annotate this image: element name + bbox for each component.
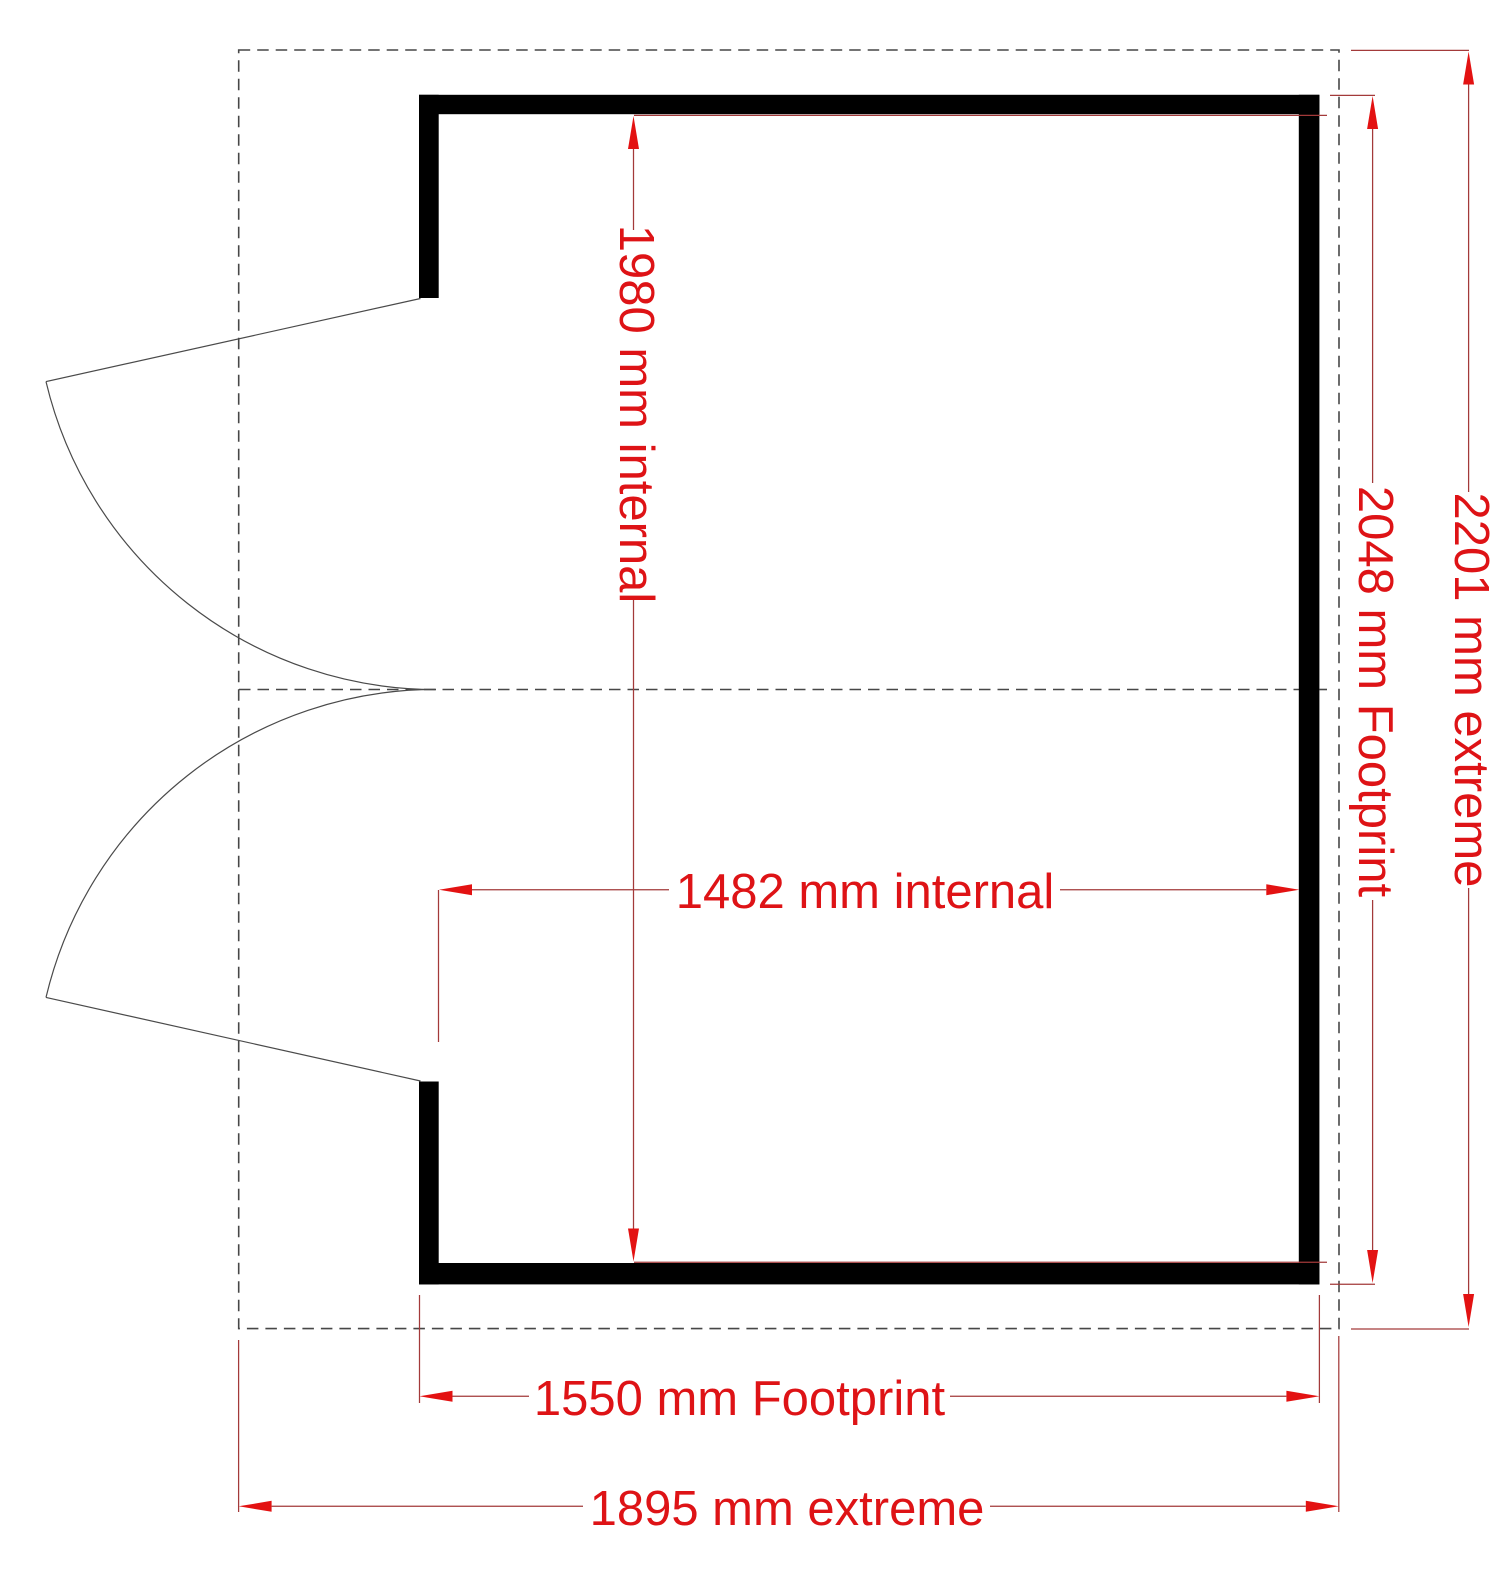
svg-text:1980 mm internal: 1980 mm internal xyxy=(609,225,663,604)
svg-text:1895 mm extreme: 1895 mm extreme xyxy=(590,1482,985,1536)
svg-text:1550 mm Footprint: 1550 mm Footprint xyxy=(534,1372,946,1426)
svg-text:1482 mm internal: 1482 mm internal xyxy=(676,865,1055,919)
svg-text:2048 mm Footprint: 2048 mm Footprint xyxy=(1348,486,1402,898)
svg-text:2201 mm extreme: 2201 mm extreme xyxy=(1444,493,1498,888)
